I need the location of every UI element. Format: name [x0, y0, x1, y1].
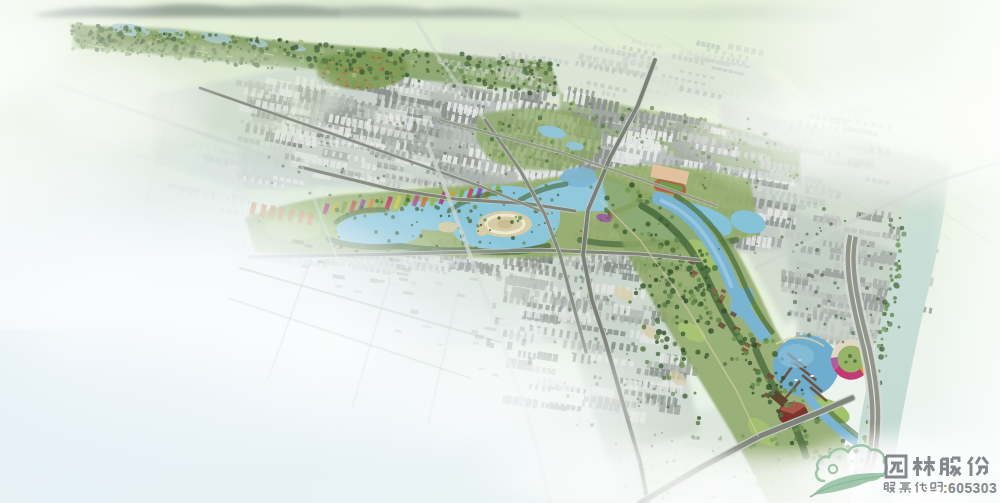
- svg-text::605303: :605303: [943, 481, 997, 496]
